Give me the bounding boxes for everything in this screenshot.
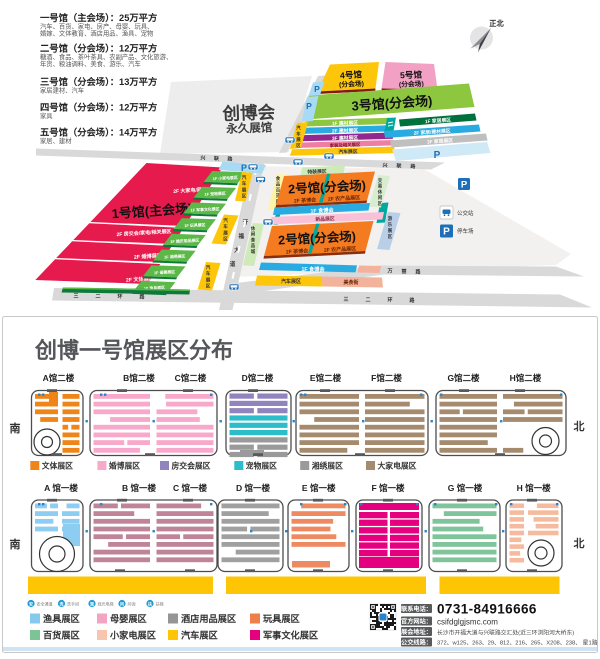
svg-text:酒店用品展区: 酒店用品展区 bbox=[181, 613, 236, 624]
svg-text:创博会: 创博会 bbox=[221, 102, 276, 124]
svg-text:P: P bbox=[241, 163, 247, 173]
svg-text:兴: 兴 bbox=[382, 162, 387, 169]
svg-text:玩具展区: 玩具展区 bbox=[263, 614, 300, 624]
svg-text:安: 安 bbox=[29, 601, 33, 607]
svg-text:A 馆一楼: A 馆一楼 bbox=[44, 483, 78, 493]
svg-text:公交线路：: 公交线路： bbox=[401, 639, 432, 647]
svg-text:展: 展 bbox=[206, 276, 211, 283]
svg-text:问: 问 bbox=[120, 601, 124, 607]
svg-text:母婴展区: 母婴展区 bbox=[110, 613, 147, 624]
svg-text:丽: 丽 bbox=[401, 268, 406, 275]
svg-text:车: 车 bbox=[223, 223, 228, 230]
svg-text:B馆二楼: B馆二楼 bbox=[123, 373, 155, 383]
svg-text:区: 区 bbox=[378, 200, 383, 207]
svg-text:创博一号馆展区分布: 创博一号馆展区分布 bbox=[34, 338, 233, 363]
svg-text:南: 南 bbox=[10, 421, 21, 435]
svg-text:正北: 正北 bbox=[489, 19, 504, 28]
svg-text:公交站: 公交站 bbox=[457, 209, 474, 217]
svg-text:家居建材、汽车: 家居建材、汽车 bbox=[40, 86, 84, 95]
svg-text:福: 福 bbox=[237, 232, 244, 240]
svg-text:C 馆一楼: C 馆一楼 bbox=[173, 483, 208, 493]
svg-text:csifdglgjsmc.com: csifdglgjsmc.com bbox=[437, 618, 498, 627]
svg-text:问询: 问询 bbox=[128, 601, 136, 607]
svg-text:汽车展区: 汽车展区 bbox=[281, 278, 301, 285]
svg-text:H馆二楼: H馆二楼 bbox=[510, 373, 542, 383]
svg-text:军事文化展区: 军事文化展区 bbox=[263, 630, 318, 641]
svg-text:P: P bbox=[314, 84, 320, 94]
svg-text:游: 游 bbox=[388, 215, 393, 222]
svg-text:展: 展 bbox=[223, 229, 228, 236]
svg-text:百货展区: 百货展区 bbox=[43, 630, 80, 641]
svg-text:区: 区 bbox=[388, 233, 393, 240]
svg-text:0731-84916666: 0731-84916666 bbox=[437, 602, 537, 617]
svg-text:文体展区: 文体展区 bbox=[42, 461, 73, 471]
svg-text:F馆二楼: F馆二楼 bbox=[371, 373, 402, 383]
svg-text:区: 区 bbox=[296, 142, 301, 149]
svg-text:三: 三 bbox=[343, 297, 348, 303]
svg-text:观: 观 bbox=[89, 601, 94, 607]
svg-text:四号馆（分会场）：12万平方: 四号馆（分会场）：12万平方 bbox=[40, 102, 157, 113]
svg-text:宠物展区: 宠物展区 bbox=[246, 461, 277, 471]
svg-text:三: 三 bbox=[73, 294, 78, 300]
svg-text:P: P bbox=[306, 101, 312, 111]
svg-text:三号馆（分会场）：13万平方: 三号馆（分会场）：13万平方 bbox=[40, 76, 157, 87]
svg-text:二: 二 bbox=[95, 294, 100, 300]
svg-text:城: 城 bbox=[251, 248, 256, 255]
svg-text:长沙市开福大道与兴联路交汇处(近三环浏阳河大桥东): 长沙市开福大道与兴联路交汇处(近三环浏阳河大桥东) bbox=[437, 628, 574, 636]
svg-text:汽: 汽 bbox=[242, 174, 247, 181]
svg-text:环: 环 bbox=[117, 293, 122, 300]
svg-text:P: P bbox=[461, 180, 468, 191]
svg-text:C馆二楼: C馆二楼 bbox=[175, 373, 207, 383]
svg-text:房交会展区: 房交会展区 bbox=[172, 461, 211, 471]
svg-text:年货、粮油调料、美食、游乐、汽车: 年货、粮油调料、美食、游乐、汽车 bbox=[40, 59, 141, 68]
svg-text:大家电展区: 大家电展区 bbox=[378, 461, 417, 471]
svg-text:汽: 汽 bbox=[223, 217, 228, 224]
svg-text:糖酒、食品、茶叶茶具、农副产品、文化旅游、: 糖酒、食品、茶叶茶具、农副产品、文化旅游、 bbox=[40, 52, 172, 61]
svg-text:五号馆（分会场）：14万平方: 五号馆（分会场）：14万平方 bbox=[40, 127, 157, 138]
svg-text:道: 道 bbox=[230, 260, 236, 268]
svg-text:展会地址：: 展会地址： bbox=[401, 628, 432, 636]
svg-text:汽车展区: 汽车展区 bbox=[181, 630, 218, 641]
svg-text:2F 茶博会: 2F 茶博会 bbox=[286, 247, 309, 255]
svg-text:渔具展区: 渔具展区 bbox=[43, 613, 80, 624]
svg-text:北: 北 bbox=[574, 536, 585, 550]
svg-text:北: 北 bbox=[574, 419, 585, 433]
svg-text:车: 车 bbox=[242, 180, 247, 187]
svg-text:372、w125、263、29、812、216、265、X2: 372、w125、263、29、812、216、265、X208、238、 星1… bbox=[437, 638, 598, 646]
svg-text:万: 万 bbox=[386, 268, 392, 275]
svg-text:2F 茶博会: 2F 茶博会 bbox=[294, 196, 317, 204]
svg-text:洗手间: 洗手间 bbox=[67, 601, 79, 607]
svg-text:区: 区 bbox=[242, 193, 247, 200]
svg-text:H 馆一楼: H 馆一楼 bbox=[517, 483, 552, 493]
svg-text:P: P bbox=[443, 227, 450, 238]
svg-text:婚博展区: 婚博展区 bbox=[108, 461, 140, 471]
svg-text:汽: 汽 bbox=[206, 264, 211, 271]
svg-text:A馆二楼: A馆二楼 bbox=[43, 373, 75, 383]
svg-text:兴: 兴 bbox=[200, 155, 205, 162]
svg-text:联: 联 bbox=[396, 162, 401, 169]
svg-text:湘绣展区: 湘绣展区 bbox=[312, 461, 343, 471]
svg-text:婚嫁、文体教育、酒店用品、渔具、宠物: 婚嫁、文体教育、酒店用品、渔具、宠物 bbox=[40, 29, 153, 38]
svg-text:停车场: 停车场 bbox=[457, 227, 474, 235]
svg-text:G 馆一楼: G 馆一楼 bbox=[448, 483, 483, 493]
svg-text:5号馆: 5号馆 bbox=[400, 69, 423, 81]
svg-text:小家电展区: 小家电展区 bbox=[109, 630, 156, 641]
svg-text:观光电梯: 观光电梯 bbox=[98, 601, 114, 607]
svg-text:1F 食博会: 1F 食博会 bbox=[301, 265, 325, 273]
svg-text:洗: 洗 bbox=[60, 601, 64, 607]
svg-text:汽车、百货、家电、房产、母婴、玩具、: 汽车、百货、家电、房产、母婴、玩具、 bbox=[40, 22, 153, 31]
svg-text:E馆二楼: E馆二楼 bbox=[310, 373, 342, 383]
svg-text:展: 展 bbox=[388, 227, 393, 234]
svg-text:G馆二楼: G馆二楼 bbox=[447, 373, 480, 383]
svg-text:车: 车 bbox=[206, 270, 211, 277]
svg-text:乐: 乐 bbox=[388, 221, 393, 228]
svg-text:联系电话：: 联系电话： bbox=[401, 605, 432, 613]
svg-text:二号馆（分会场）：12万平方: 二号馆（分会场）：12万平方 bbox=[40, 43, 157, 54]
svg-text:安全通道: 安全通道 bbox=[37, 601, 53, 607]
svg-text:区: 区 bbox=[206, 283, 211, 290]
svg-text:联: 联 bbox=[214, 155, 219, 162]
svg-text:美食街: 美食街 bbox=[343, 279, 358, 286]
svg-text:D 馆一楼: D 馆一楼 bbox=[236, 483, 271, 493]
svg-text:二: 二 bbox=[365, 297, 370, 303]
svg-text:家具: 家具 bbox=[40, 111, 53, 120]
svg-text:官方网站：: 官方网站： bbox=[401, 618, 432, 626]
svg-text:E 馆一楼: E 馆一楼 bbox=[302, 483, 336, 493]
svg-text:南: 南 bbox=[10, 537, 21, 551]
svg-text:扶梯: 扶梯 bbox=[156, 601, 164, 607]
svg-text:环: 环 bbox=[387, 297, 392, 304]
svg-text:家居、建材: 家居、建材 bbox=[40, 136, 72, 145]
svg-text:B 馆一楼: B 馆一楼 bbox=[122, 483, 157, 493]
svg-text:D馆二楼: D馆二楼 bbox=[242, 373, 274, 383]
svg-text:区: 区 bbox=[223, 236, 228, 243]
svg-text:4号馆: 4号馆 bbox=[340, 68, 363, 80]
svg-text:F 馆一楼: F 馆一楼 bbox=[371, 483, 405, 493]
svg-text:一号馆（主会场）：25万平方: 一号馆（主会场）：25万平方 bbox=[40, 12, 157, 23]
svg-text:P: P bbox=[434, 150, 441, 161]
svg-text:展: 展 bbox=[242, 186, 247, 193]
